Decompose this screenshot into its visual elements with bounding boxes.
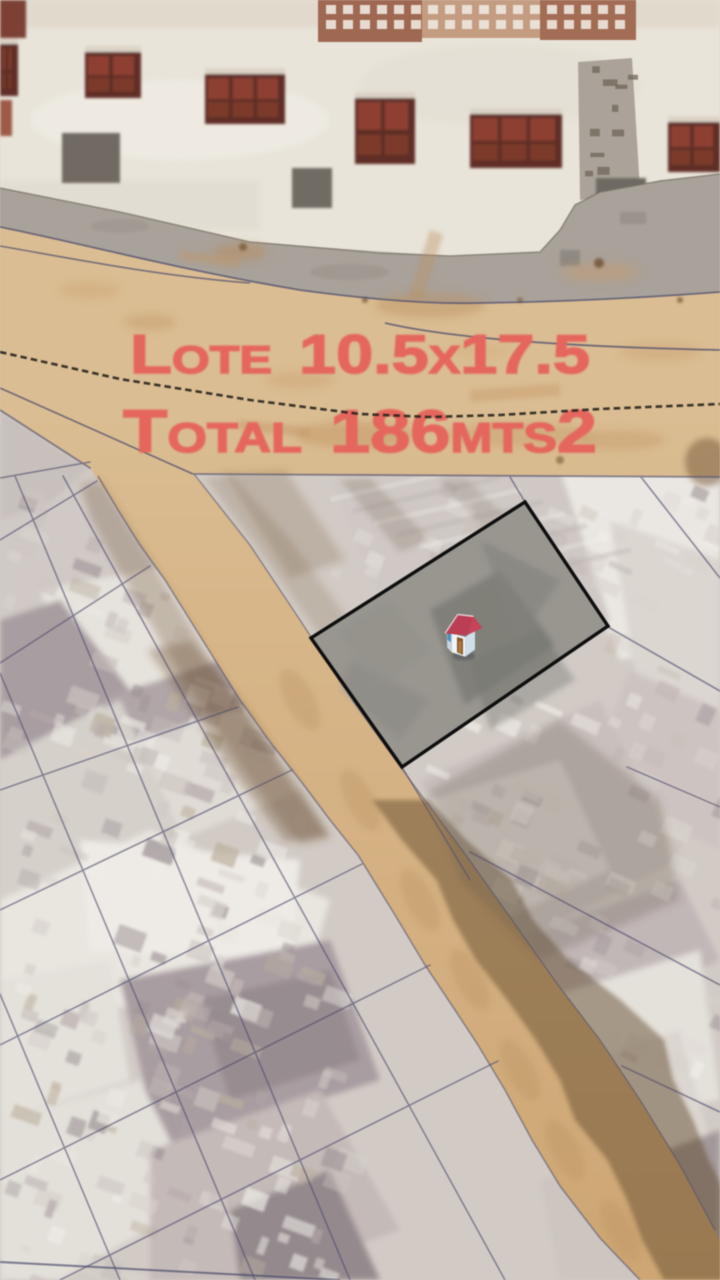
svg-text:Total: Total	[123, 398, 302, 465]
svg-text:186mts2: 186mts2	[330, 398, 597, 465]
svg-text:10.5x17.5: 10.5x17.5	[299, 323, 590, 385]
svg-text:Lote: Lote	[130, 323, 272, 385]
